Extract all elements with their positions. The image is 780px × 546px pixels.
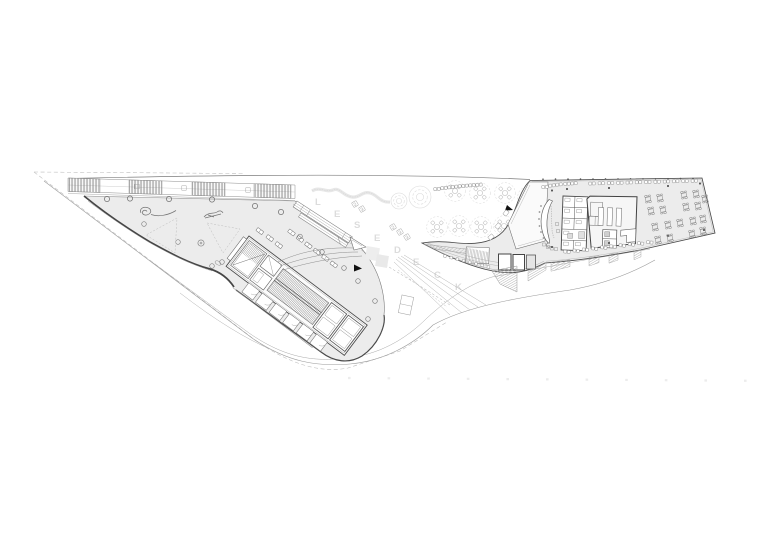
svg-text:L: L	[315, 197, 321, 208]
svg-text:S: S	[354, 220, 360, 231]
svg-text:K: K	[455, 282, 462, 293]
svg-text:E: E	[334, 209, 340, 220]
svg-text:D: D	[394, 245, 401, 256]
svg-text:E: E	[374, 233, 380, 244]
